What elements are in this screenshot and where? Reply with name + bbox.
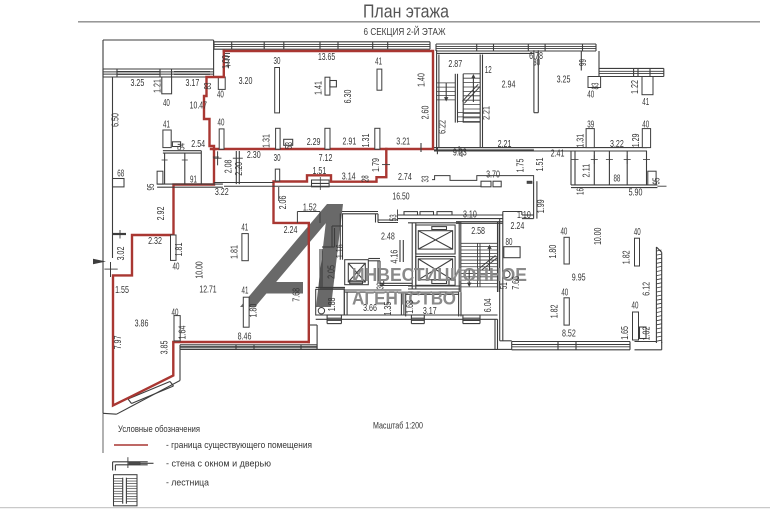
svg-text:40: 40: [642, 120, 649, 131]
svg-text:3.20: 3.20: [239, 76, 253, 87]
svg-text:40: 40: [172, 308, 179, 319]
svg-text:1.40: 1.40: [416, 73, 427, 87]
svg-text:2.41: 2.41: [551, 148, 565, 159]
svg-text:2.06: 2.06: [278, 195, 289, 209]
svg-text:2.21: 2.21: [498, 139, 512, 150]
svg-text:2.92: 2.92: [156, 206, 167, 220]
svg-text:2.74: 2.74: [398, 172, 412, 183]
svg-text:40: 40: [218, 118, 225, 129]
svg-text:5.90: 5.90: [629, 187, 643, 198]
svg-text:3.70: 3.70: [486, 169, 500, 180]
svg-text:3.22: 3.22: [215, 187, 229, 198]
svg-text:16: 16: [575, 188, 586, 195]
svg-text:30: 30: [533, 58, 540, 69]
svg-text:51: 51: [499, 282, 510, 289]
svg-text:41: 41: [163, 120, 170, 131]
svg-text:- стена с окном и дверью: - стена с окном и дверью: [166, 458, 271, 468]
svg-text:- граница существующего помеще: - граница существующего помещения: [166, 440, 312, 450]
svg-text:3.66: 3.66: [363, 303, 377, 314]
svg-text:1.16: 1.16: [335, 244, 346, 258]
svg-text:40: 40: [173, 262, 180, 273]
svg-text:8.52: 8.52: [562, 329, 576, 340]
svg-text:3.25: 3.25: [557, 75, 571, 86]
svg-text:1.21: 1.21: [152, 79, 163, 93]
svg-text:40: 40: [561, 287, 568, 298]
svg-text:3.85: 3.85: [160, 340, 171, 354]
svg-text:1.51: 1.51: [313, 166, 327, 177]
svg-text:1.65: 1.65: [620, 326, 631, 340]
svg-text:1.02: 1.02: [642, 326, 653, 340]
svg-text:1.41: 1.41: [314, 81, 325, 95]
svg-text:3.14: 3.14: [342, 171, 356, 182]
svg-text:53: 53: [389, 214, 400, 221]
svg-text:6.12: 6.12: [642, 282, 653, 296]
svg-text:1.55: 1.55: [115, 285, 129, 296]
svg-text:30: 30: [274, 153, 281, 164]
svg-text:2.91: 2.91: [343, 137, 357, 148]
svg-text:41: 41: [375, 57, 382, 68]
svg-text:1.68: 1.68: [405, 300, 416, 314]
svg-text:7.12: 7.12: [319, 153, 333, 164]
svg-text:2.32: 2.32: [148, 236, 162, 247]
svg-text:3.86: 3.86: [135, 319, 149, 330]
svg-text:7.68: 7.68: [291, 288, 302, 302]
svg-text:3.17: 3.17: [423, 306, 437, 317]
svg-text:6.22: 6.22: [438, 120, 449, 134]
svg-text:1.51: 1.51: [535, 157, 546, 171]
svg-text:8.46: 8.46: [238, 332, 252, 343]
svg-text:1.29: 1.29: [631, 133, 642, 147]
svg-text:10.00: 10.00: [593, 227, 604, 244]
svg-text:1.99: 1.99: [536, 199, 547, 213]
svg-text:6.50: 6.50: [111, 113, 122, 127]
svg-text:95: 95: [651, 177, 662, 184]
svg-text:6.04: 6.04: [483, 298, 494, 312]
svg-text:12: 12: [485, 65, 492, 76]
svg-text:2.48: 2.48: [381, 232, 395, 243]
svg-text:40: 40: [560, 227, 567, 238]
svg-text:1.31: 1.31: [575, 134, 586, 148]
svg-text:16.50: 16.50: [392, 192, 409, 203]
svg-text:1.79: 1.79: [371, 158, 382, 172]
svg-text:2.30: 2.30: [247, 150, 261, 161]
svg-text:2.20: 2.20: [234, 162, 245, 176]
svg-text:1.80: 1.80: [548, 244, 559, 258]
svg-text:40: 40: [163, 98, 170, 109]
svg-text:40: 40: [217, 90, 224, 101]
svg-text:3.21: 3.21: [396, 137, 410, 148]
svg-text:54: 54: [177, 143, 188, 150]
svg-text:2.21: 2.21: [481, 106, 492, 120]
svg-text:3.22: 3.22: [610, 139, 624, 150]
svg-text:План этажа: План этажа: [363, 2, 450, 22]
svg-text:7.97: 7.97: [113, 335, 124, 349]
svg-text:30: 30: [376, 282, 387, 289]
svg-text:1.22: 1.22: [630, 80, 641, 94]
svg-text:7.66: 7.66: [511, 276, 522, 290]
svg-text:99: 99: [578, 59, 589, 66]
svg-text:2.11: 2.11: [582, 163, 593, 177]
svg-text:41: 41: [241, 223, 248, 234]
svg-text:68: 68: [117, 168, 124, 179]
svg-text:1.31: 1.31: [261, 134, 272, 148]
svg-text:6.30: 6.30: [343, 89, 354, 103]
svg-text:13.65: 13.65: [318, 52, 335, 63]
svg-text:88: 88: [613, 174, 620, 185]
svg-text:33: 33: [420, 175, 431, 182]
svg-text:41: 41: [642, 97, 649, 108]
svg-text:1.00: 1.00: [221, 55, 232, 69]
svg-text:2.58: 2.58: [471, 226, 485, 237]
svg-text:53: 53: [284, 142, 295, 149]
svg-text:40: 40: [634, 227, 641, 238]
svg-text:28: 28: [360, 175, 371, 182]
svg-text:1.81: 1.81: [230, 245, 241, 259]
svg-text:3.25: 3.25: [131, 78, 145, 89]
svg-text:80: 80: [506, 237, 513, 248]
svg-text:12.71: 12.71: [199, 285, 216, 296]
svg-text:83: 83: [203, 82, 214, 89]
svg-text:40: 40: [587, 89, 594, 100]
svg-text:2.05: 2.05: [327, 265, 338, 279]
svg-text:9.95: 9.95: [572, 273, 586, 284]
svg-text:2.87: 2.87: [448, 59, 462, 70]
svg-text:40: 40: [632, 301, 639, 312]
svg-text:4.16: 4.16: [389, 249, 400, 263]
svg-text:- лестница: - лестница: [166, 477, 209, 487]
svg-text:1.82: 1.82: [621, 250, 632, 264]
svg-text:1.31: 1.31: [361, 133, 372, 147]
svg-text:1.75: 1.75: [516, 158, 527, 172]
svg-text:3.10: 3.10: [463, 209, 477, 220]
svg-text:39: 39: [587, 120, 594, 131]
svg-text:1.82: 1.82: [549, 304, 560, 318]
svg-text:Условные обозначения: Условные обозначения: [118, 424, 200, 434]
svg-text:2.94: 2.94: [502, 80, 516, 91]
svg-text:1.35: 1.35: [383, 301, 394, 315]
svg-text:ИНВЕСТИЦИОННОЕ: ИНВЕСТИЦИОННОЕ: [352, 265, 527, 285]
svg-text:10.47: 10.47: [190, 101, 207, 112]
svg-text:1.52: 1.52: [303, 203, 317, 214]
svg-text:2.24: 2.24: [511, 221, 525, 232]
svg-text:95: 95: [146, 183, 157, 190]
svg-text:1.10: 1.10: [517, 210, 531, 221]
svg-text:2.54: 2.54: [191, 139, 205, 150]
svg-text:1.80: 1.80: [249, 303, 260, 317]
svg-text:Масштаб 1:200: Масштаб 1:200: [373, 421, 423, 431]
svg-text:9.23: 9.23: [453, 148, 467, 159]
svg-text:91: 91: [190, 174, 197, 185]
svg-text:30: 30: [274, 56, 281, 67]
svg-text:3.17: 3.17: [186, 78, 200, 89]
svg-text:2.60: 2.60: [420, 105, 431, 119]
svg-text:1.64: 1.64: [177, 325, 188, 339]
svg-text:10.00: 10.00: [195, 261, 206, 278]
svg-text:2.29: 2.29: [307, 137, 321, 148]
svg-text:1.81: 1.81: [174, 242, 185, 256]
svg-text:2.24: 2.24: [284, 225, 298, 236]
svg-text:1.88: 1.88: [327, 297, 338, 311]
svg-text:41: 41: [242, 286, 249, 297]
svg-text:3.02: 3.02: [116, 246, 127, 260]
svg-text:6 СЕКЦИЯ 2-Й ЭТАЖ: 6 СЕКЦИЯ 2-Й ЭТАЖ: [364, 25, 446, 38]
